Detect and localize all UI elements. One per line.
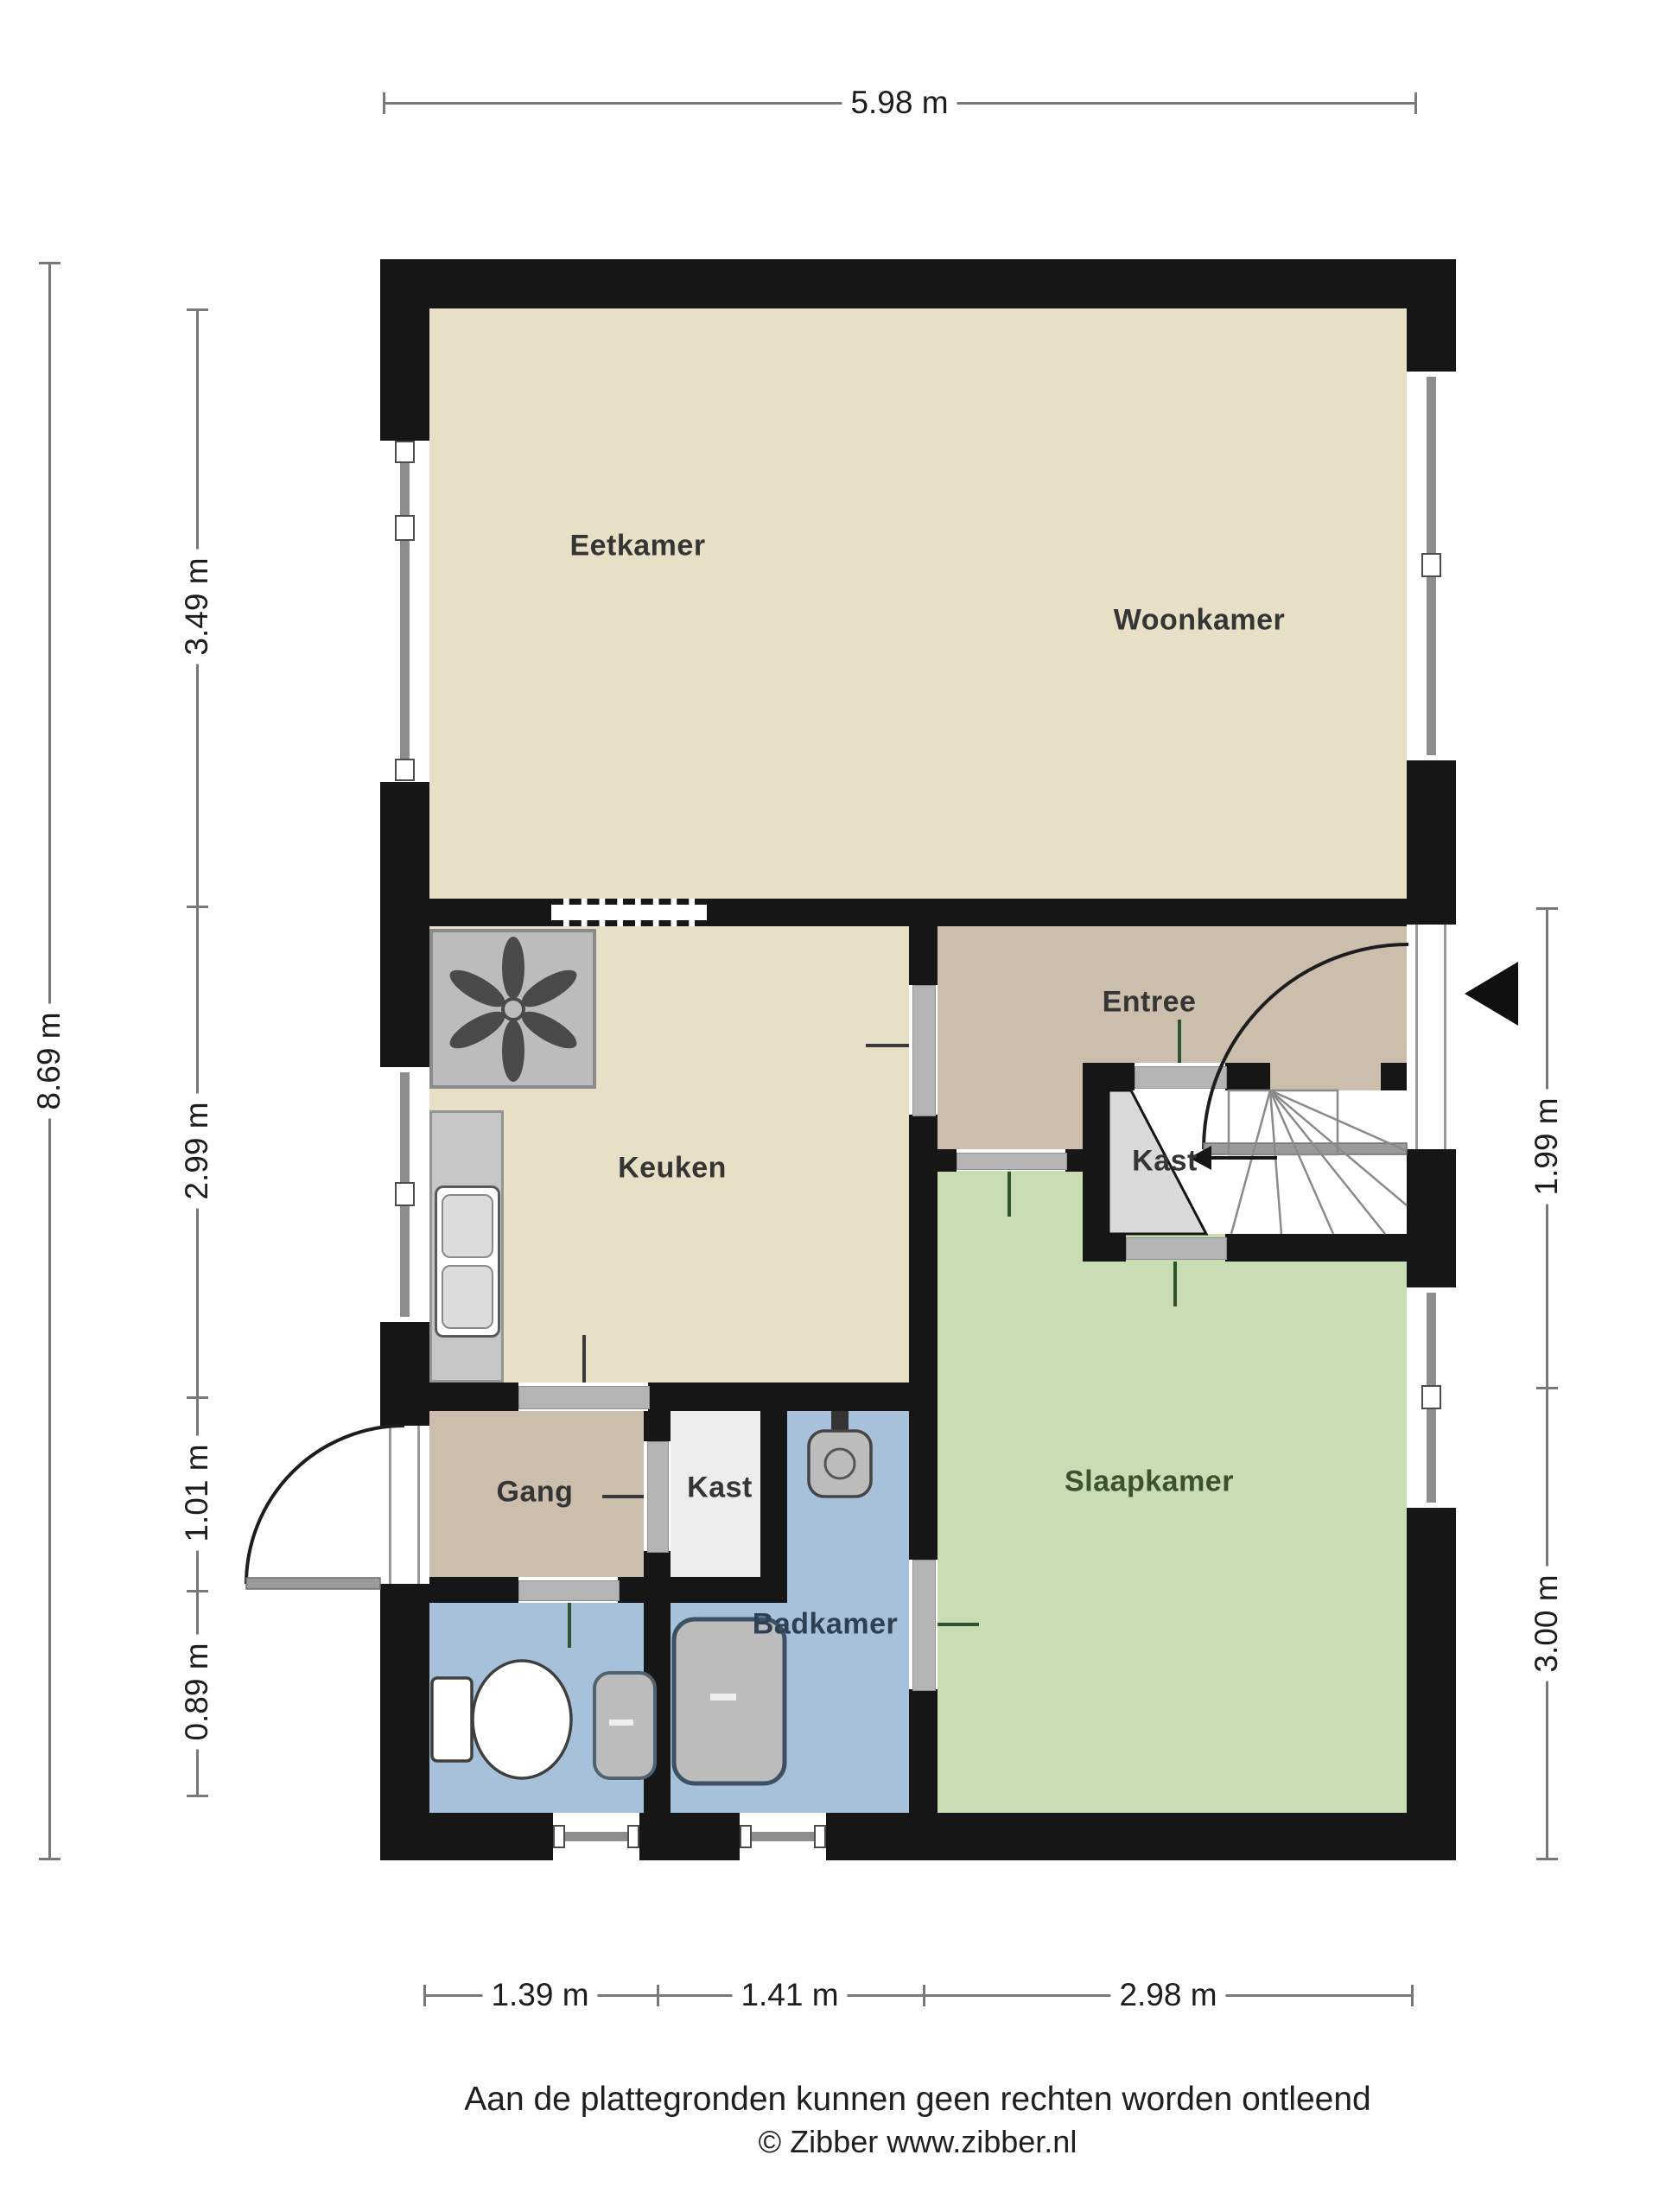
room-entree-left-part — [938, 1063, 1083, 1149]
wall — [644, 1551, 671, 1577]
door-tick — [1173, 1262, 1177, 1306]
label-woonkamer: Woonkamer — [1114, 604, 1285, 638]
wall — [1109, 1063, 1135, 1090]
wall — [707, 899, 1407, 926]
wall — [644, 1411, 671, 1441]
label-kast-stairs: Kast — [1132, 1145, 1198, 1179]
wall — [429, 1382, 518, 1411]
door-tick — [602, 1495, 644, 1498]
dim-label-298: 2.98 m — [1110, 1975, 1225, 2015]
dim-right-line — [1546, 907, 1548, 1860]
dim-tick — [923, 1985, 925, 2006]
wall — [938, 1149, 957, 1172]
wall — [909, 1115, 938, 1560]
floorplan-page: { "title": "Begane grond plattegrond", "… — [0, 0, 1659, 2212]
dim-tick — [423, 1985, 426, 2006]
dim-tick — [1411, 1985, 1414, 2006]
dim-tick — [1536, 1858, 1558, 1860]
dim-label-101: 1.01 m — [177, 1435, 217, 1550]
door-tick — [938, 1623, 979, 1626]
wall — [429, 1577, 518, 1603]
dim-tick — [657, 1985, 659, 2006]
door-kast-slaapkamer — [1126, 1237, 1227, 1260]
door-gang-kast — [647, 1441, 669, 1553]
dim-left-inner-line — [196, 308, 199, 1797]
door-badkamer-slaapkamer — [912, 1560, 936, 1691]
room-entree-stair-gap — [1270, 1063, 1381, 1090]
door-gang-toilet — [518, 1580, 620, 1601]
label-badkamer: Badkamer — [753, 1608, 898, 1642]
wall — [760, 1411, 787, 1577]
window-glass — [400, 446, 410, 777]
wall — [639, 1813, 740, 1860]
wall — [429, 899, 551, 926]
wall — [1083, 1063, 1109, 1262]
gang-door-leaf — [246, 1578, 380, 1589]
footer-disclaimer: Aan de plattegronden kunnen geen rechten… — [464, 2081, 1371, 2119]
door-tick — [582, 1335, 586, 1382]
dim-tick — [1414, 92, 1417, 114]
stove-burner-bottom — [442, 1265, 493, 1329]
dim-tick — [39, 1858, 60, 1860]
wall — [1407, 1508, 1456, 1860]
door-frame — [389, 1426, 391, 1584]
window-notch — [814, 1825, 826, 1848]
dim-tick — [187, 1590, 208, 1592]
room-toilet — [429, 1603, 644, 1813]
door-keuken-entree — [912, 985, 936, 1116]
window-notch — [1421, 553, 1441, 577]
dim-tick — [187, 906, 208, 908]
door-tick — [866, 1044, 909, 1047]
window-notch — [395, 515, 415, 541]
dim-label-349: 3.49 m — [177, 549, 217, 664]
wall — [380, 782, 429, 1067]
wall — [1225, 1234, 1407, 1262]
wall — [644, 1603, 671, 1813]
door-entree-slaapkamer — [957, 1153, 1067, 1170]
label-slaapkamer: Slaapkamer — [1065, 1465, 1234, 1499]
dim-left-outer-label: 8.69 m — [29, 1003, 69, 1118]
dim-label-300: 3.00 m — [1527, 1566, 1567, 1681]
wall — [618, 1577, 787, 1603]
window-notch — [740, 1825, 752, 1848]
dim-tick — [1536, 1387, 1558, 1389]
wall — [1407, 760, 1456, 925]
wall — [1407, 259, 1456, 372]
dim-label-139: 1.39 m — [482, 1975, 597, 2015]
door-keuken-gang — [518, 1386, 650, 1409]
window-glass — [558, 1832, 634, 1841]
door-frame — [1444, 925, 1446, 1149]
wall — [909, 1689, 938, 1813]
wall — [380, 259, 429, 441]
label-eetkamer: Eetkamer — [569, 530, 705, 563]
dim-tick — [39, 262, 60, 264]
dim-tick — [1536, 907, 1558, 910]
window-notch — [395, 759, 415, 781]
window-notch — [553, 1825, 565, 1848]
dim-tick — [187, 308, 208, 311]
window-notch — [395, 441, 415, 463]
dim-label-141: 1.41 m — [732, 1975, 847, 2015]
wall — [1083, 1234, 1126, 1262]
door-tick — [568, 1603, 571, 1648]
window-glass — [745, 1832, 821, 1841]
window-notch — [627, 1825, 639, 1848]
label-keuken: Keuken — [618, 1152, 727, 1185]
door-frame — [1415, 925, 1418, 1149]
dim-label-089: 0.89 m — [177, 1634, 217, 1749]
gang-door-opening — [380, 1426, 429, 1584]
wall — [648, 1382, 909, 1411]
dim-tick — [187, 1795, 208, 1797]
front-door-opening — [1407, 925, 1456, 1149]
hatch-opening — [551, 899, 707, 926]
entrance-arrow-icon — [1465, 962, 1518, 1026]
dim-label-199: 1.99 m — [1527, 1089, 1567, 1204]
wall — [909, 926, 938, 985]
footer-copyright: © Zibber www.zibber.nl — [759, 2124, 1077, 2160]
wall — [380, 259, 1456, 308]
door-frame — [417, 1426, 420, 1584]
stove-burner-top — [442, 1194, 493, 1258]
dim-tick — [187, 1396, 208, 1399]
door-entree-stairs-kast — [1135, 1066, 1227, 1089]
dim-top-label: 5.98 m — [842, 83, 957, 123]
door-tick — [1178, 1020, 1181, 1063]
label-entree: Entree — [1103, 986, 1197, 1020]
wall — [1381, 1063, 1407, 1090]
wall — [826, 1813, 1456, 1860]
window-notch — [395, 1182, 415, 1206]
dim-tick — [383, 92, 385, 114]
door-tick — [1007, 1172, 1011, 1217]
wall — [380, 1813, 553, 1860]
wall — [1407, 1149, 1456, 1287]
extractor-unit — [429, 929, 596, 1089]
window-notch — [1421, 1385, 1441, 1409]
label-gang: Gang — [497, 1476, 574, 1510]
wall — [380, 1322, 429, 1426]
wall — [1225, 1063, 1270, 1090]
dim-label-299: 2.99 m — [177, 1093, 217, 1208]
label-kast-small: Kast — [687, 1471, 753, 1505]
